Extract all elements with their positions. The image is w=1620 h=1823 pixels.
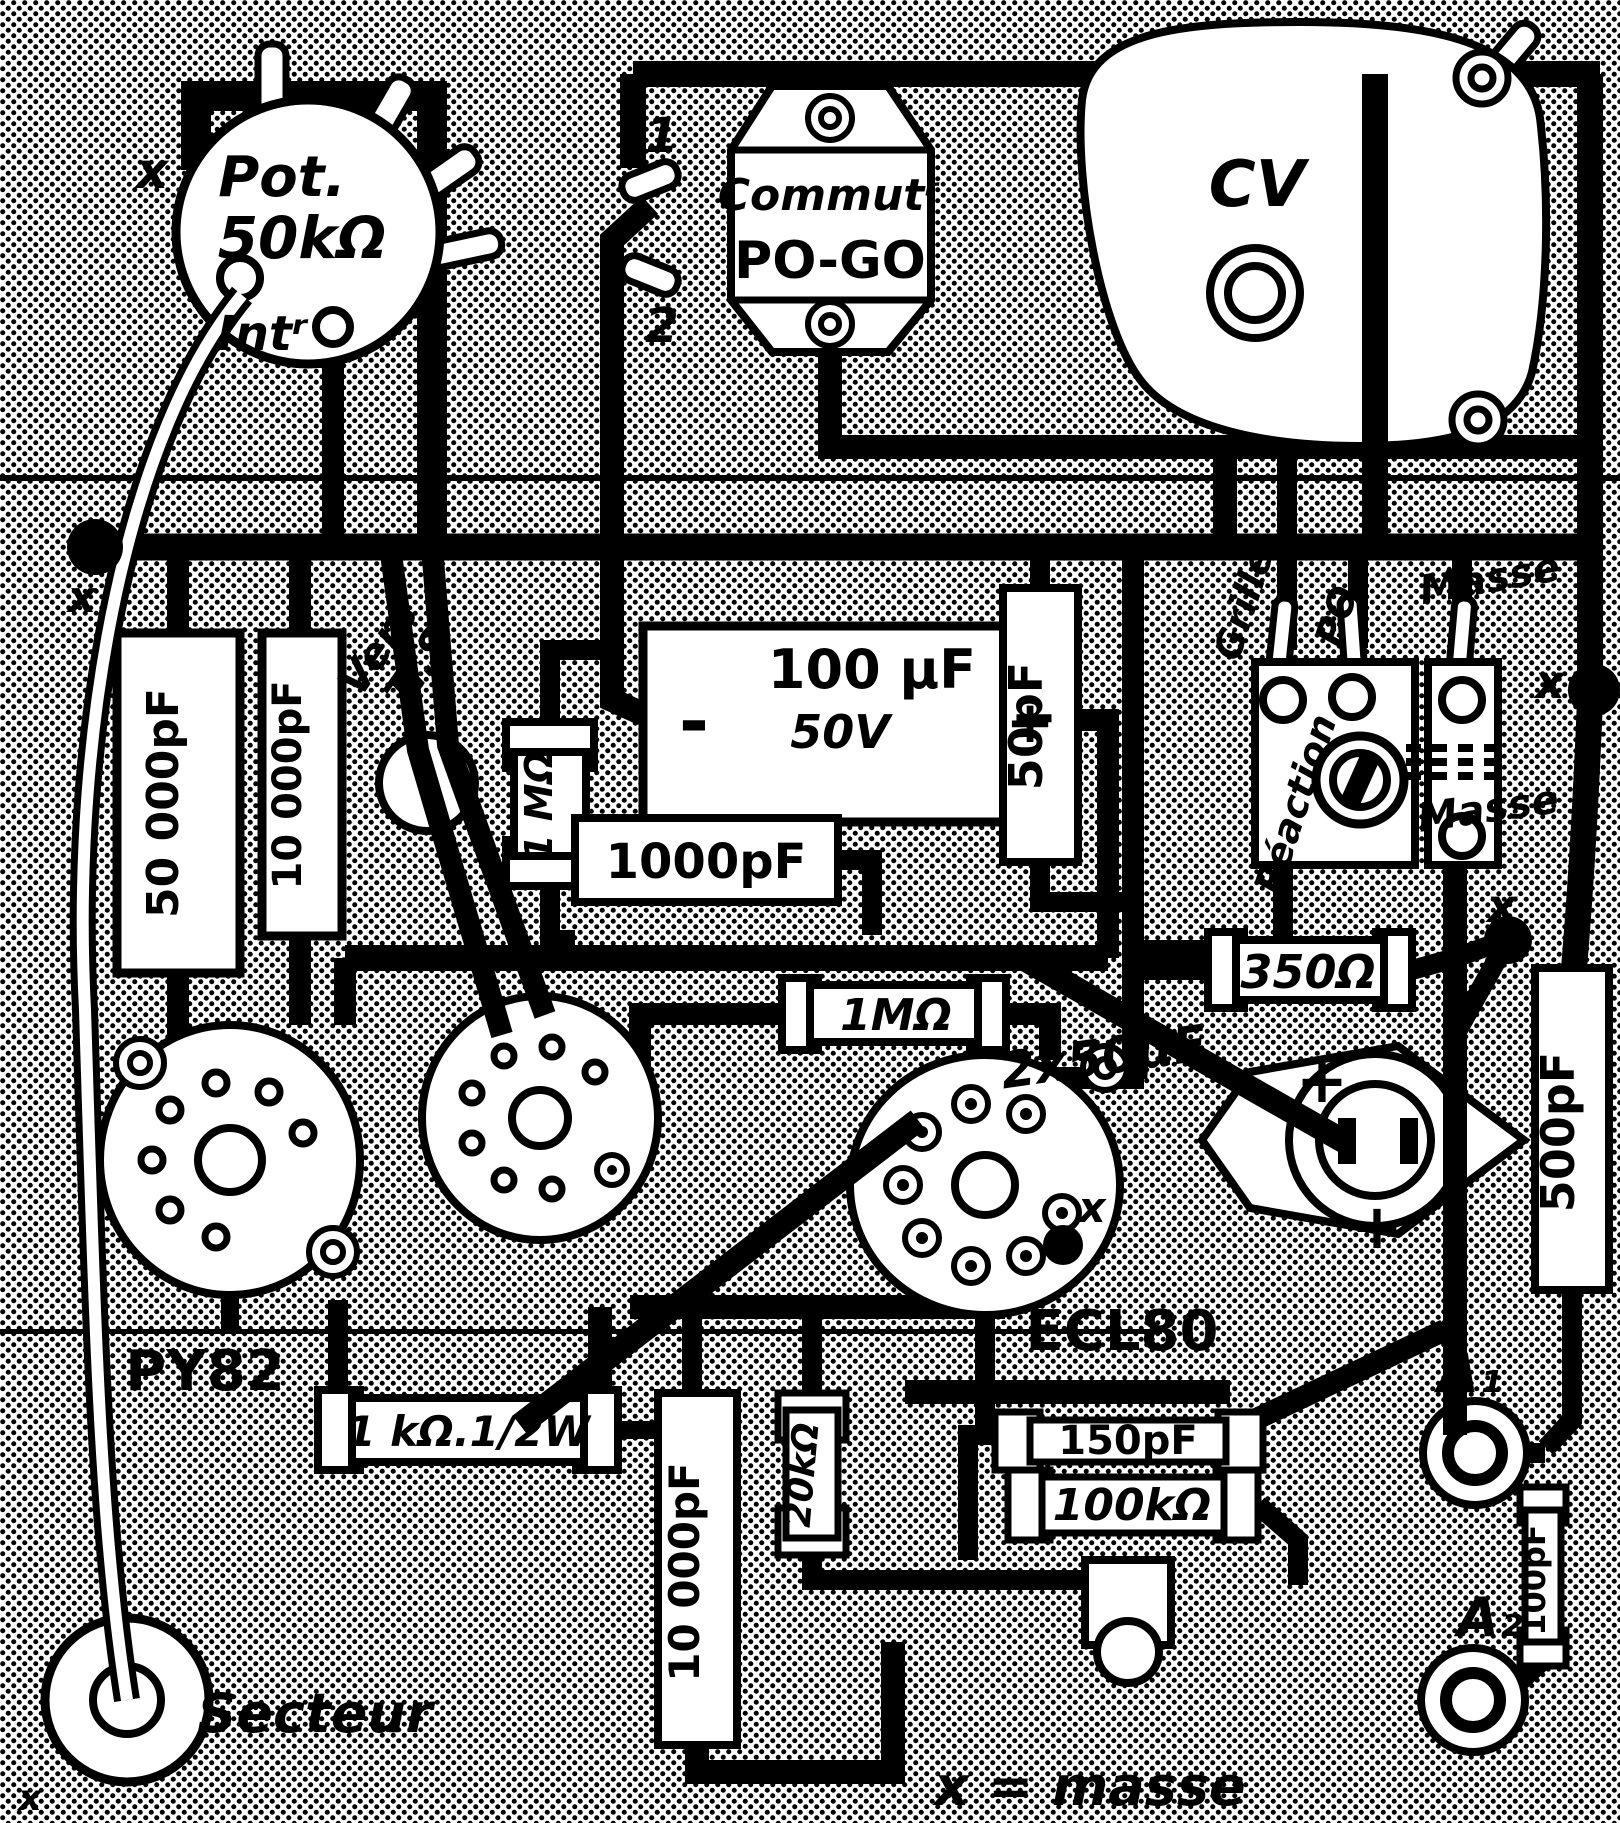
socket-pin <box>462 1083 482 1103</box>
socket-lug-hole <box>323 1242 343 1262</box>
pot-title: Pot. <box>218 145 346 210</box>
ground-x: x <box>16 1778 43 1819</box>
cv-label: CV <box>1209 148 1310 222</box>
socket-pin <box>542 1037 562 1057</box>
c150-label: 150pF <box>1058 1418 1197 1464</box>
c1000-label: 1000pF <box>606 834 807 890</box>
commut-title: Commutʳ <box>718 170 941 221</box>
socket-pin <box>159 1099 181 1121</box>
py82-label: PY82 <box>125 1339 285 1404</box>
r1m-mid-label: 1MΩ <box>840 990 952 1041</box>
ground-x: x <box>66 572 98 623</box>
pot-int-label: Intʳ <box>217 306 309 362</box>
wiring-diagram: Pot. 50kΩ Intʳ x x 1 2 Commutʳ PO-GO CV … <box>0 0 1620 1823</box>
socket-lug-hole <box>607 1165 617 1175</box>
ground-x: x <box>133 142 170 200</box>
tube-socket-middle <box>422 996 658 1240</box>
socket-lug-hole <box>130 1053 150 1073</box>
cv-mount-hole <box>1471 67 1493 89</box>
plus-sign: + <box>1351 1190 1403 1263</box>
socket-pin <box>159 1199 181 1221</box>
junction-dot <box>1568 664 1620 716</box>
socket-center <box>955 1155 1015 1215</box>
socket-pin <box>205 1226 227 1248</box>
c100-label: 100pF <box>1515 1524 1553 1636</box>
socket-pin <box>462 1133 482 1153</box>
socket-pin <box>542 1179 562 1199</box>
minus-sign: - <box>679 679 709 763</box>
cap10000-bottom-label: 10 000pF <box>660 1462 709 1682</box>
a2-label: A₂ <box>1453 1586 1523 1649</box>
secteur-label: Secteur <box>197 1682 435 1745</box>
ecl80-label: ECL80 <box>1026 1299 1219 1364</box>
socket-pin <box>585 1062 605 1082</box>
c100uf-volt: 50V <box>790 705 893 759</box>
output-trimmer <box>1085 1560 1171 1683</box>
c100uf-label: 100 µF <box>768 638 976 701</box>
r1k-label: 1 kΩ.1/2W <box>346 1407 592 1456</box>
tube-socket-py82 <box>100 1025 360 1295</box>
variable-capacitor-cv <box>1081 18 1547 446</box>
r350-label: 350Ω <box>1240 945 1375 999</box>
socket-pin <box>141 1149 163 1171</box>
terminal-a2-ring <box>1446 1673 1500 1727</box>
terminal-1-label: 1 <box>645 108 678 164</box>
coil-terminal-po <box>1332 677 1372 717</box>
cap10000-left-label: 10 000pF <box>265 680 311 889</box>
trimmer-screw <box>1097 1621 1159 1683</box>
cap50000-label: 50 000pF <box>138 688 189 918</box>
c50-label: 50pF <box>999 662 1053 790</box>
pot-value: 50kΩ <box>218 204 387 272</box>
ground-note: x = masse <box>931 1755 1245 1818</box>
hexagon-slot <box>1400 1118 1418 1164</box>
cv-shaft-hole <box>1228 266 1282 320</box>
commut-screw-hole <box>821 315 839 333</box>
socket-pin <box>258 1081 280 1103</box>
coil-terminal-grille <box>1263 680 1303 720</box>
r1m-vert-label: 1 MΩ <box>517 751 561 861</box>
plus-sign: + <box>1296 1044 1348 1117</box>
ground-x: x <box>1076 1183 1107 1232</box>
socket-pin <box>494 1170 514 1190</box>
socket-pin <box>292 1122 314 1144</box>
socket-pin <box>205 1072 227 1094</box>
socket-center <box>198 1128 262 1192</box>
c500-label: 500pF <box>1531 1052 1585 1212</box>
coil-terminal-masse <box>1442 680 1482 720</box>
socket-center <box>512 1090 568 1146</box>
commut-range: PO-GO <box>734 231 926 291</box>
pot-terminal <box>316 310 350 344</box>
junction-dot <box>67 519 123 575</box>
junction-dot <box>1043 1225 1083 1265</box>
cv-mount-hole <box>1467 409 1489 431</box>
ground-x: x <box>1533 655 1566 709</box>
terminal-2-label: 2 <box>645 298 678 354</box>
a1-label: A₁ <box>1433 1342 1502 1405</box>
commut-screw-hole <box>821 109 839 127</box>
socket-pin <box>494 1046 514 1066</box>
r100k-label: 100kΩ <box>1053 1480 1212 1531</box>
wiring-diagram-page: Pot. 50kΩ Intʳ x x 1 2 Commutʳ PO-GO CV … <box>0 0 1620 1823</box>
ground-x: x <box>1485 879 1518 933</box>
